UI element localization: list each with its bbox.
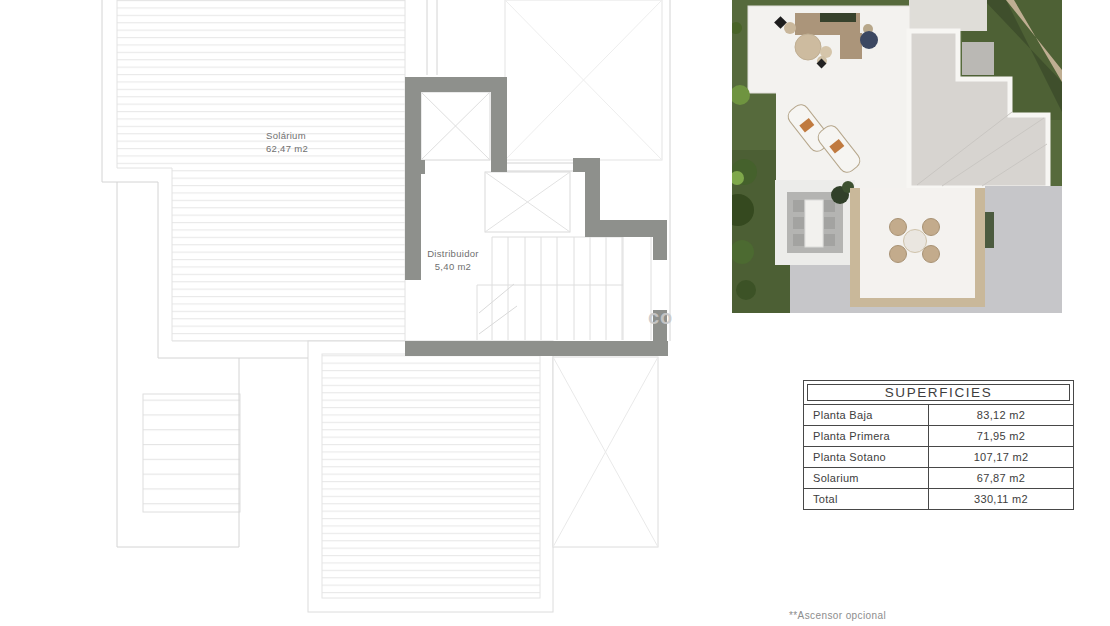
row-value: 67,87 m2 — [929, 468, 1073, 488]
row-value: 83,12 m2 — [929, 405, 1073, 425]
row-label: Total — [804, 489, 929, 509]
pergola-dining — [775, 180, 855, 265]
solarium-room-name: Solárium — [266, 129, 308, 142]
distribuidor-room-area: 5,40 m2 — [413, 260, 493, 273]
solarium-room-area: 62,47 m2 — [266, 142, 308, 155]
row-value: 330,11 m2 — [929, 489, 1073, 509]
table-row: Total 330,11 m2 — [804, 489, 1073, 509]
row-label: Solarium — [804, 468, 929, 488]
row-value: 71,95 m2 — [929, 426, 1073, 446]
aerial-render-image — [732, 0, 1062, 313]
plan-sheet: Solárium 62,47 m2 Distribuidor 5,40 m2 c… — [0, 0, 1110, 626]
staircase — [477, 237, 651, 340]
roof-void-topright — [505, 0, 662, 160]
solarium-deck-area — [117, 0, 405, 341]
lower-deck-area — [308, 341, 553, 612]
distribuidor-room-label: Distribuidor 5,40 m2 — [413, 247, 493, 274]
solarium-room-label: Solárium 62,47 m2 — [266, 129, 308, 156]
table-row: Planta Primera 71,95 m2 — [804, 426, 1073, 447]
row-value: 107,17 m2 — [929, 447, 1073, 467]
roof-parapet-top — [909, 0, 987, 31]
row-label: Planta Primera — [804, 426, 929, 446]
footnote-ascensor: **Ascensor opcional — [789, 610, 886, 621]
surfaces-table: SUPERFICIES Planta Baja 83,12 m2 Planta … — [803, 380, 1074, 510]
row-label: Planta Sotano — [804, 447, 929, 467]
table-row: Planta Sotano 107,17 m2 — [804, 447, 1073, 468]
table-row: Planta Baja 83,12 m2 — [804, 405, 1073, 426]
distribuidor-room-name: Distribuidor — [413, 247, 493, 260]
row-label: Planta Baja — [804, 405, 929, 425]
table-row: Solarium 67,87 m2 — [804, 468, 1073, 489]
slatted-pergola-area — [143, 394, 240, 512]
watermark-text: co — [648, 306, 673, 329]
surfaces-table-title: SUPERFICIES — [807, 384, 1070, 401]
stair-skylight — [485, 172, 570, 232]
surfaces-table-header: SUPERFICIES — [804, 381, 1073, 405]
floorplan-drawing — [0, 0, 700, 626]
roof-void-bottomright — [553, 357, 658, 547]
elevator-shaft — [421, 92, 490, 160]
